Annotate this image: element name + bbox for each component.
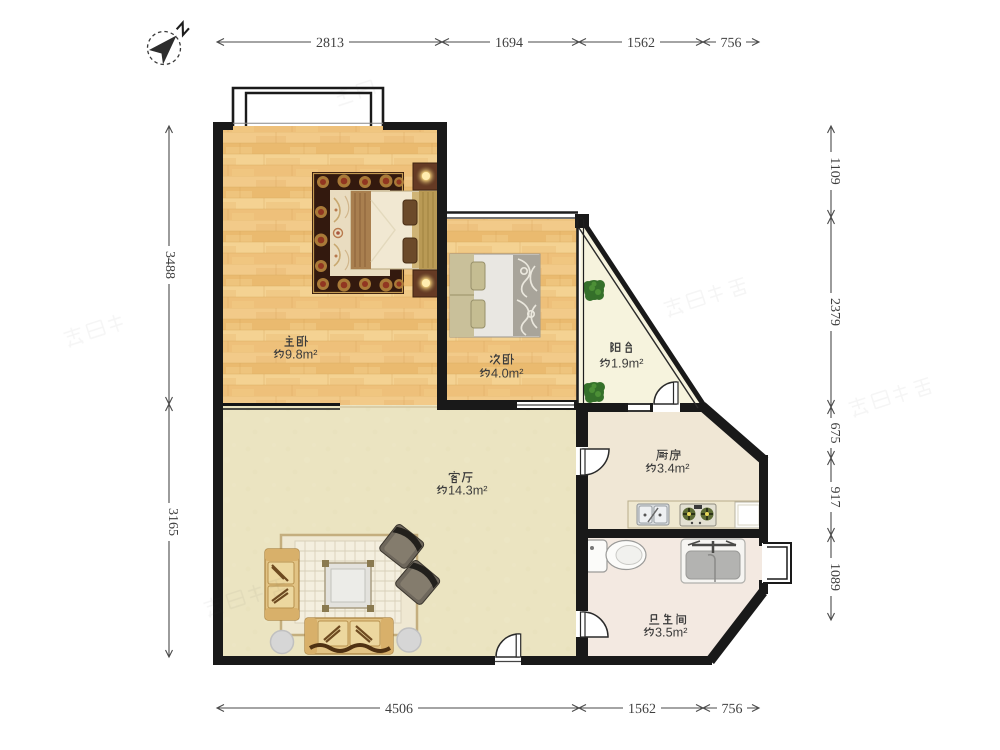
svg-text:3.4m²: 3.4m² (657, 462, 689, 476)
svg-text:3.5m²: 3.5m² (655, 626, 687, 640)
svg-text:675: 675 (827, 423, 842, 444)
svg-text:756: 756 (720, 36, 741, 51)
svg-text:1562: 1562 (628, 702, 656, 717)
svg-text:756: 756 (721, 702, 742, 717)
svg-text:1.9m²: 1.9m² (611, 357, 643, 371)
svg-text:1109: 1109 (827, 157, 842, 184)
svg-text:2379: 2379 (827, 298, 842, 326)
svg-text:1089: 1089 (827, 563, 842, 591)
svg-text:4.0m²: 4.0m² (491, 367, 523, 381)
svg-text:9.8m²: 9.8m² (285, 348, 317, 362)
svg-text:4506: 4506 (385, 702, 413, 717)
svg-text:3165: 3165 (165, 508, 180, 536)
svg-text:1694: 1694 (495, 36, 523, 51)
svg-text:2813: 2813 (316, 36, 344, 51)
svg-text:917: 917 (827, 487, 842, 508)
svg-text:3488: 3488 (162, 251, 177, 279)
svg-text:1562: 1562 (627, 36, 655, 51)
svg-text:14.3m²: 14.3m² (448, 484, 488, 498)
